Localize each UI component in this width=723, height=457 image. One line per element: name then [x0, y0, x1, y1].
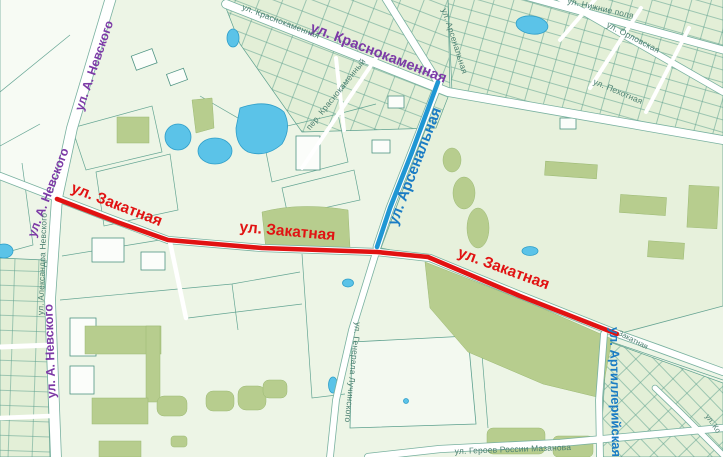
pond: [227, 29, 239, 47]
pond: [198, 138, 232, 164]
map-viewport[interactable]: ул. А. Невскогоул. А. Невскогоул. А. Нев…: [0, 0, 723, 457]
street-label-artilleriyskaya: ул. Артиллерийская: [607, 327, 624, 457]
pond: [343, 279, 354, 287]
pond: [236, 104, 288, 154]
pond: [165, 124, 191, 150]
pond: [0, 244, 13, 258]
pond: [522, 247, 538, 256]
pond: [404, 399, 409, 404]
map-canvas: ул. А. Невскогоул. А. Невскогоул. А. Нев…: [0, 0, 723, 457]
